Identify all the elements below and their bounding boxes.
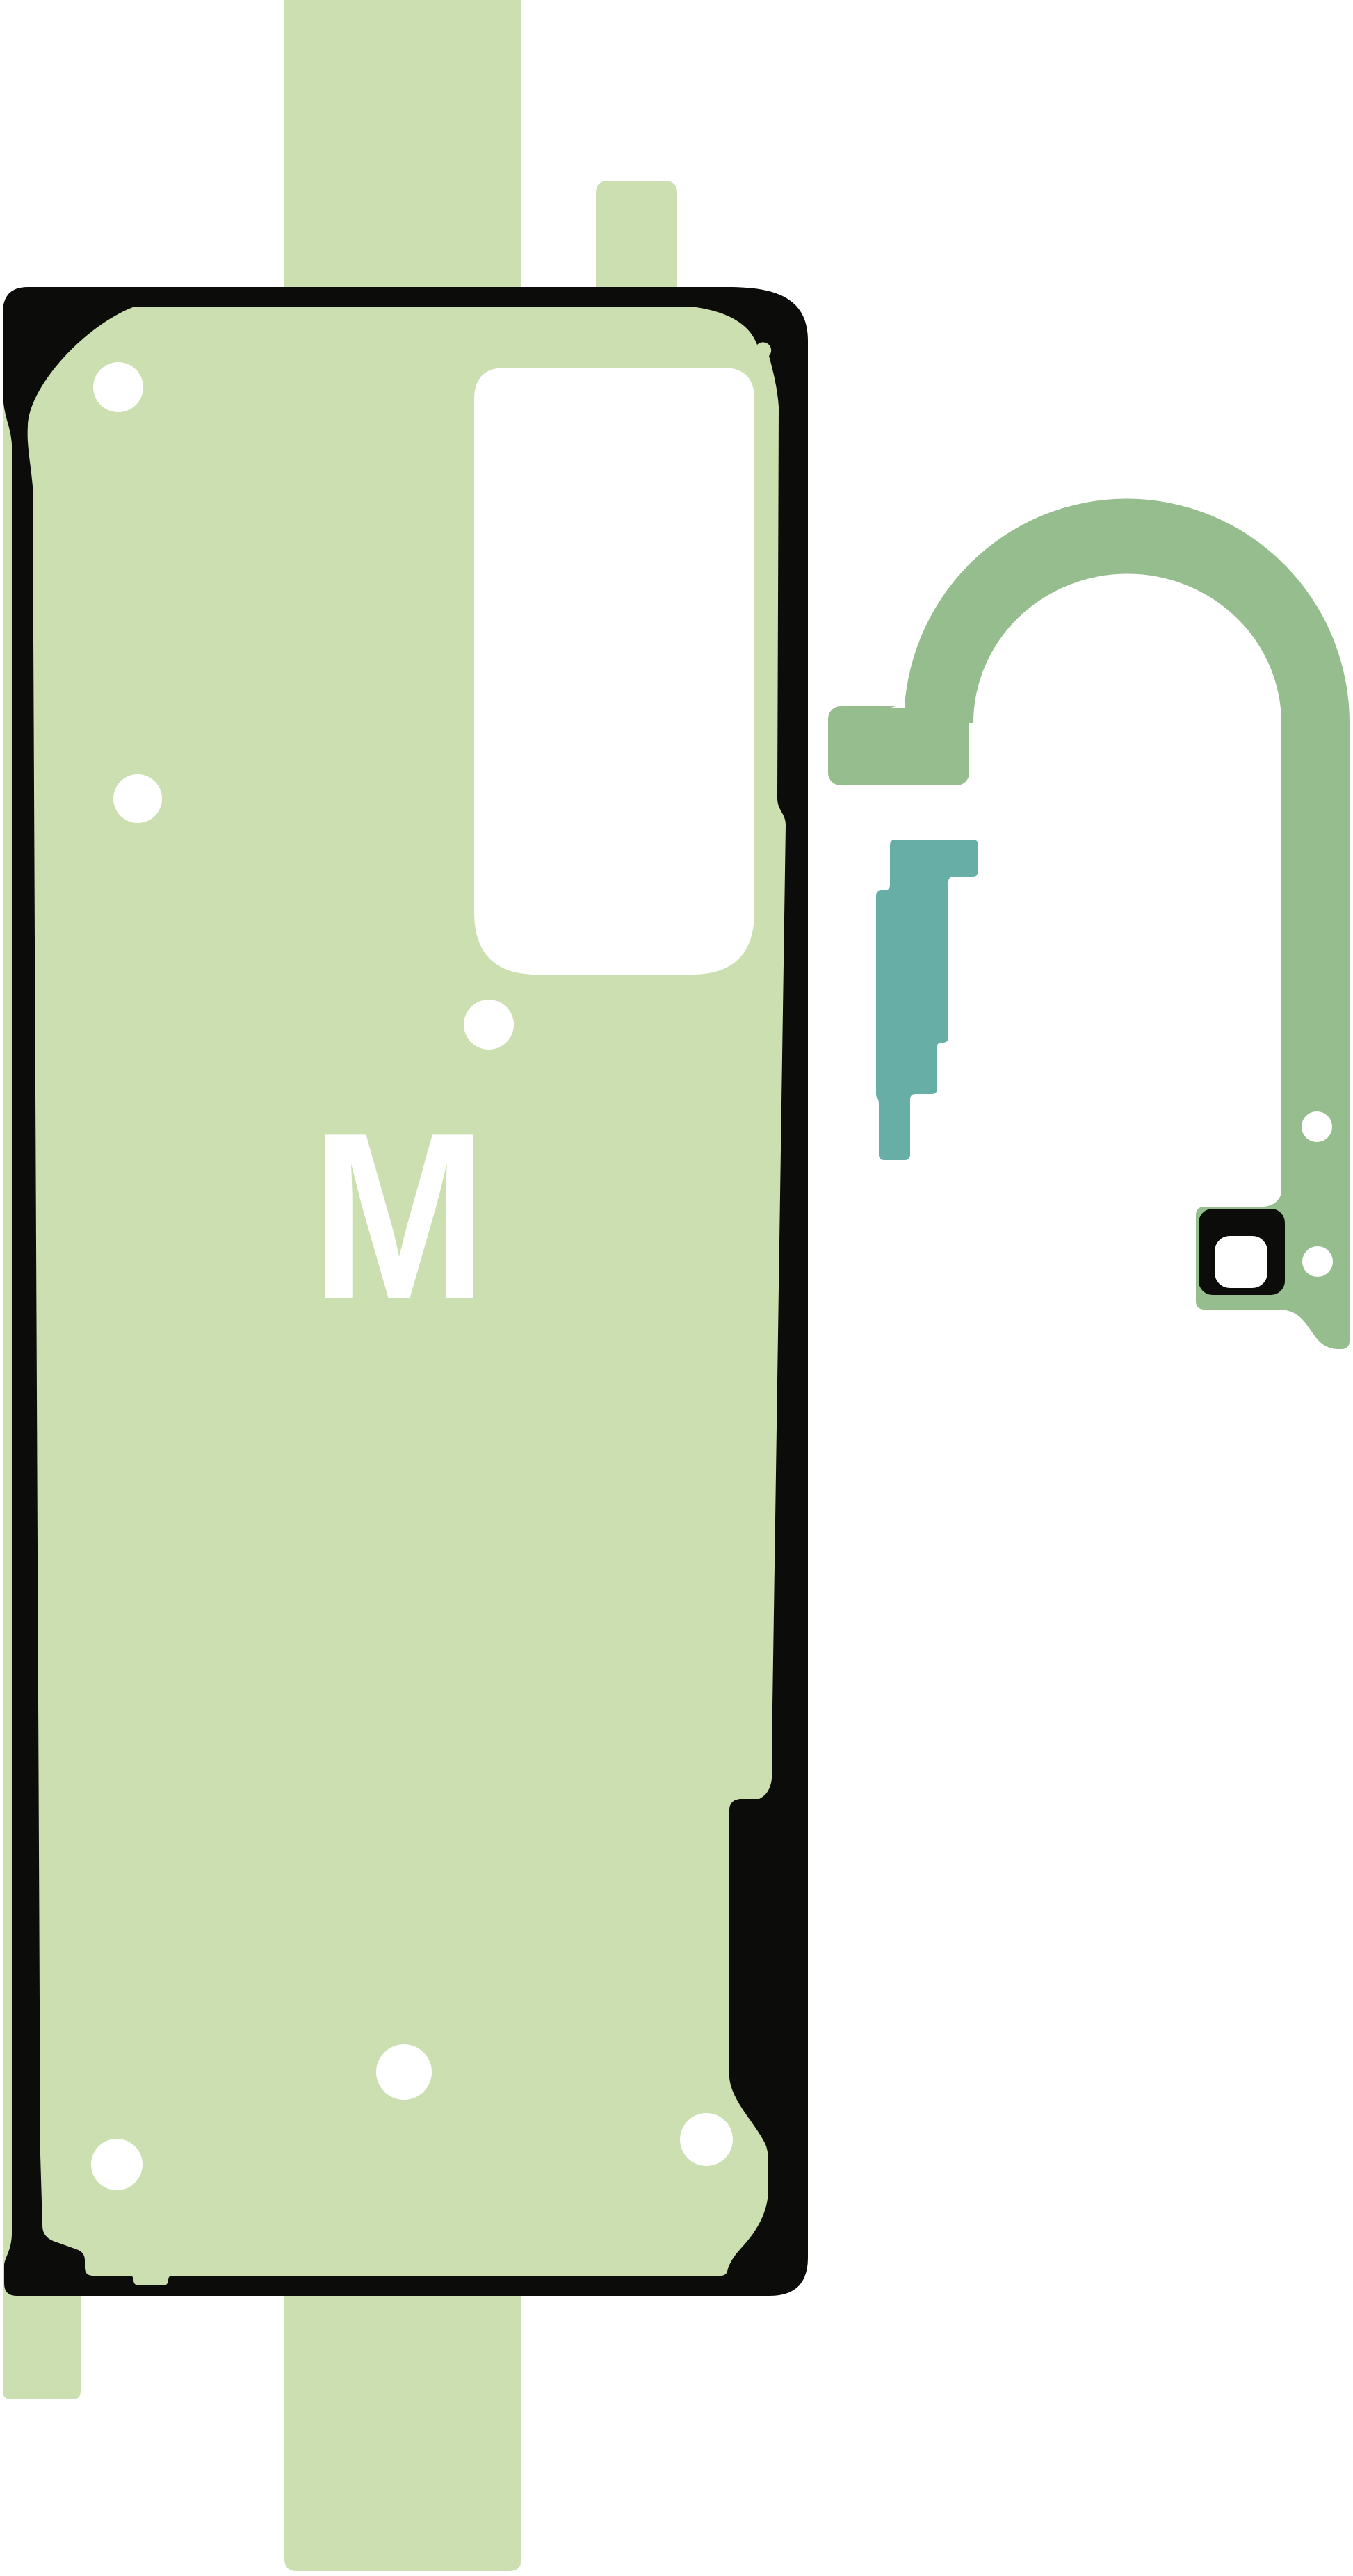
svg-text:M: M bbox=[311, 1084, 487, 1348]
